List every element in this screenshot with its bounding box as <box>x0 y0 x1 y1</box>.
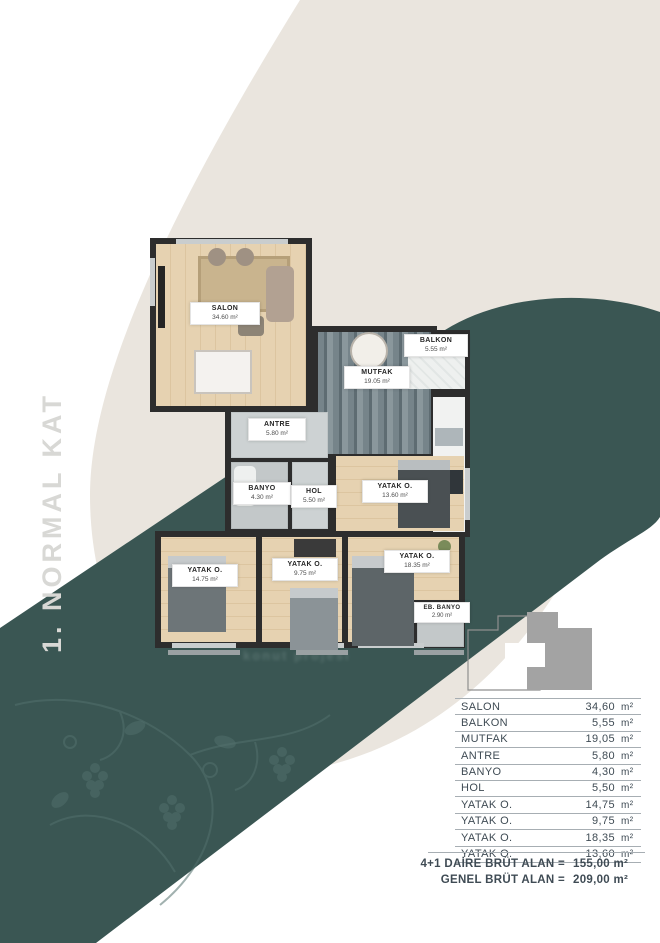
key-plan-notch <box>505 643 545 667</box>
area-table: SALON 34,60 m² BALKON 5,55 m² MUTFAK 19,… <box>455 698 641 863</box>
table-row: YATAK O. 18,35 m² <box>455 829 641 845</box>
mutfak-table <box>352 334 386 368</box>
table-row: MUTFAK 19,05 m² <box>455 731 641 747</box>
floor-title: 1. NORMAL KAT <box>37 393 73 653</box>
room-label-yatak18: YATAK O. 18.35 m² <box>384 550 450 573</box>
salon-armchair <box>208 248 226 266</box>
room-label-mutfak: MUTFAK 19.05 m² <box>344 366 410 389</box>
brochure-page: 1. NORMAL KAT konut projesi <box>0 0 660 943</box>
room-label-hol: HOL 5.50 m² <box>291 485 337 508</box>
totals: 4+1 DAİRE BRÜT ALAN = 155,00 m² GENEL BR… <box>400 858 645 890</box>
yatak9-bed <box>290 588 338 650</box>
table-row: ANTRE 5,80 m² <box>455 747 641 763</box>
room-label-salon: SALON 34.60 m² <box>190 302 260 325</box>
room-label-banyo: BANYO 4.30 m² <box>233 482 291 505</box>
room-label-balkon: BALKON 5.55 m² <box>404 334 468 357</box>
room-label-yatak9: YATAK O. 9.75 m² <box>272 558 338 581</box>
total-gross-general: GENEL BRÜT ALAN = 209,00 m² <box>400 874 645 886</box>
table-row: SALON 34,60 m² <box>455 698 641 714</box>
table-row: BALKON 5,55 m² <box>455 714 641 730</box>
table-row: YATAK O. 14,75 m² <box>455 796 641 812</box>
room-label-ebbanyo: EB. BANYO 2.90 m² <box>414 602 470 623</box>
yatak14-bottom-window <box>172 643 236 648</box>
total-gross-flat: 4+1 DAİRE BRÜT ALAN = 155,00 m² <box>400 858 645 870</box>
table-row: BANYO 4,30 m² <box>455 764 641 780</box>
yatak13-right-window <box>465 468 470 520</box>
kitchen-sink <box>435 428 463 446</box>
table-row: HOL 5,50 m² <box>455 780 641 796</box>
balcony-rail-mid <box>296 650 348 655</box>
salon-dining-table <box>196 352 250 392</box>
yatak9-wardrobe <box>294 539 336 557</box>
salon-left-window <box>150 258 155 306</box>
totals-divider <box>428 852 645 853</box>
room-label-yatak14: YATAK O. 14.75 m² <box>172 564 238 587</box>
salon-top-window <box>176 239 288 244</box>
salon-armchair-2 <box>236 248 254 266</box>
salon-tv-unit <box>158 266 165 328</box>
table-row: YATAK O. 9,75 m² <box>455 813 641 829</box>
room-label-yatak13: YATAK O. 13.60 m² <box>362 480 428 503</box>
balcony-rail-left <box>168 650 240 655</box>
salon-sofa <box>266 266 294 322</box>
room-label-antre: ANTRE 5.80 m² <box>248 418 306 441</box>
balcony-rail-right <box>414 650 464 655</box>
